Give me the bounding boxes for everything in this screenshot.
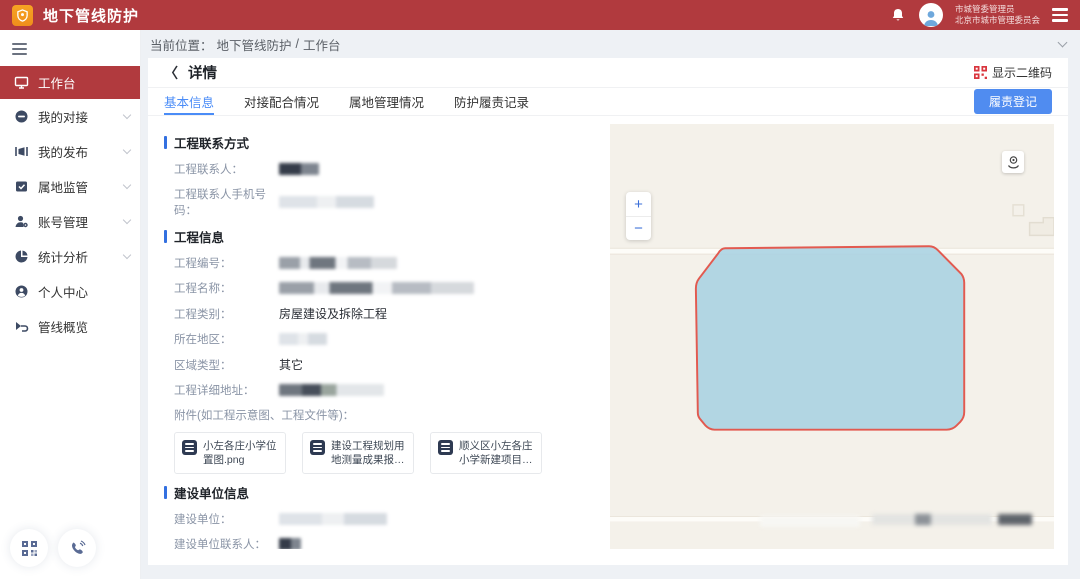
redacted-value: [279, 257, 397, 269]
section-bar: [164, 136, 167, 149]
chevron-down-icon: [123, 181, 131, 189]
supervise-check-icon: [14, 179, 29, 194]
field-region-type: 区域类型： 其它: [174, 356, 596, 373]
attachment-name: 小左各庄小学位置图.png: [203, 439, 278, 467]
map-building-outline: [1013, 205, 1024, 216]
chevron-down-icon: [123, 251, 131, 259]
map-watermark: [998, 514, 1032, 525]
attachment-item[interactable]: 建设工程规划用地测量成果报告-...: [302, 432, 414, 474]
phone-contact-button[interactable]: [58, 529, 96, 567]
account-gear-icon: [14, 214, 29, 229]
breadcrumb-root[interactable]: 地下管线防护: [217, 35, 292, 54]
app-title: 地下管线防护: [43, 5, 139, 26]
sidebar-item-workbench[interactable]: 工作台: [0, 66, 140, 99]
tab-bar: 基本信息 对接配合情况 属地管理情况 防护履责记录 履责登记: [148, 88, 1068, 116]
field-attachments-label: 附件(如工程示意图、工程文件等)：: [174, 407, 596, 423]
document-icon: [310, 440, 325, 455]
sidebar-item-label: 我的对接: [38, 107, 88, 126]
field-project-contact-name: 工程联系人：: [174, 161, 596, 177]
sidebar-item-label: 我的发布: [38, 142, 88, 161]
show-qr-code-link[interactable]: 显示二维码: [974, 64, 1052, 81]
sidebar-item-my-publish[interactable]: 我的发布: [0, 134, 140, 169]
breadcrumb-prefix: 当前位置：: [150, 35, 213, 54]
app-logo-shield-icon: [12, 5, 33, 26]
map-watermark: [760, 516, 860, 527]
field-project-category: 工程类别： 房屋建设及拆除工程: [174, 305, 596, 322]
chevron-down-icon: [123, 146, 131, 154]
map-zoom-control: + −: [626, 192, 651, 240]
sidebar-item-account-management[interactable]: 账号管理: [0, 204, 140, 239]
basic-info-form: 工程联系方式 工程联系人： 工程联系人手机号码： 工程信息: [164, 124, 596, 549]
chevron-down-icon: [123, 111, 131, 119]
sidebar: 工作台 我的对接 我的发布 属地监管: [0, 30, 140, 579]
document-icon: [438, 440, 453, 455]
field-construction-unit-contact: 建设单位联系人：: [174, 536, 596, 549]
app-header: 地下管线防护 市城管委管理员 北京市城市管理委员会: [0, 0, 1080, 30]
map-building-outline: [1030, 218, 1054, 236]
person-circle-icon: [14, 284, 29, 299]
back-chevron-icon[interactable]: 〈: [164, 66, 178, 80]
streetview-locate-icon[interactable]: [1002, 151, 1024, 173]
header-menu-icon[interactable]: [1052, 8, 1068, 22]
detail-card: 〈 详情 显示二维码 基本信息 对接配合情况 属地管理情况 防护履责记录 履责登…: [148, 58, 1068, 565]
redacted-value: [279, 196, 374, 208]
sidebar-item-statistics[interactable]: 统计分析: [0, 239, 140, 274]
section-construction-unit: 建设单位信息: [164, 483, 596, 502]
sidebar-item-territorial-supervision[interactable]: 属地监管: [0, 169, 140, 204]
attachment-name: 顺义区小左各庄小学新建项目-建设...: [459, 439, 534, 467]
tab-docking-cooperation[interactable]: 对接配合情况: [244, 88, 319, 115]
sidebar-item-personal-center[interactable]: 个人中心: [0, 274, 140, 309]
field-project-region: 所在地区：: [174, 331, 596, 347]
breadcrumb: 当前位置： 地下管线防护 / 工作台: [140, 30, 1080, 58]
sidebar-item-label: 个人中心: [38, 282, 88, 301]
section-project-contact: 工程联系方式: [164, 133, 596, 152]
section-bar: [164, 486, 167, 499]
attachment-item[interactable]: 顺义区小左各庄小学新建项目-建设...: [430, 432, 542, 474]
tab-protection-records[interactable]: 防护履责记录: [454, 88, 529, 115]
chevron-down-icon: [123, 216, 131, 224]
handshake-circle-icon: [14, 109, 29, 124]
publish-icon: [14, 144, 29, 159]
zoom-out-button[interactable]: −: [626, 216, 651, 240]
redacted-value: [279, 282, 474, 294]
redacted-value: [279, 538, 301, 549]
tab-territorial-management[interactable]: 属地管理情况: [349, 88, 424, 115]
field-project-address: 工程详细地址：: [174, 382, 596, 398]
field-construction-unit: 建设单位：: [174, 511, 596, 527]
show-qr-code-label: 显示二维码: [992, 64, 1052, 81]
parcel-polygon: [696, 246, 964, 429]
field-project-contact-phone: 工程联系人手机号码：: [174, 186, 596, 218]
sidebar-item-label: 统计分析: [38, 247, 88, 266]
sidebar-item-my-docking[interactable]: 我的对接: [0, 99, 140, 134]
sidebar-item-pipeline-overview[interactable]: 管线概览: [0, 309, 140, 344]
user-avatar[interactable]: [919, 3, 943, 27]
sidebar-nav: 工作台 我的对接 我的发布 属地监管: [0, 66, 140, 344]
notification-bell-icon[interactable]: [889, 6, 907, 24]
sidebar-collapse-icon[interactable]: [0, 30, 140, 64]
map-watermark: [915, 514, 931, 525]
attachment-name: 建设工程规划用地测量成果报告-...: [331, 439, 406, 467]
zoom-in-button[interactable]: +: [626, 192, 651, 216]
map-panel[interactable]: + −: [610, 124, 1054, 549]
document-icon: [182, 440, 197, 455]
section-project-info: 工程信息: [164, 227, 596, 246]
page-title: 详情: [188, 62, 217, 83]
breadcrumb-current: 工作台: [303, 35, 341, 54]
section-bar: [164, 230, 167, 243]
map-canvas: [610, 124, 1054, 549]
redacted-value: [279, 384, 384, 396]
redacted-value: [279, 333, 327, 345]
breadcrumb-collapse-chevron-icon[interactable]: [1058, 37, 1068, 47]
sidebar-item-label: 管线概览: [38, 317, 88, 336]
qr-red-icon: [974, 66, 987, 79]
sidebar-item-label: 工作台: [38, 73, 76, 92]
pie-chart-icon: [14, 249, 29, 264]
qr-code-button[interactable]: [10, 529, 48, 567]
user-info[interactable]: 市城管委管理员 北京市城市管理委员会: [955, 4, 1040, 25]
tab-basic-info[interactable]: 基本信息: [164, 88, 214, 115]
sidebar-item-label: 账号管理: [38, 212, 88, 231]
overview-arrow-icon: [14, 319, 29, 334]
workbench-monitor-icon: [14, 75, 29, 90]
user-org: 北京市城市管理委员会: [955, 15, 1040, 26]
field-project-number: 工程编号：: [174, 255, 596, 271]
breadcrumb-separator: /: [296, 37, 299, 51]
redacted-value: [279, 513, 387, 525]
redacted-value: [279, 163, 319, 175]
sidebar-item-label: 属地监管: [38, 177, 88, 196]
attachment-item[interactable]: 小左各庄小学位置图.png: [174, 432, 286, 474]
duty-register-button[interactable]: 履责登记: [974, 89, 1052, 114]
attachments-list: 小左各庄小学位置图.png 建设工程规划用地测量成果报告-... 顺义区小左各庄…: [174, 432, 596, 474]
field-project-name: 工程名称：: [174, 280, 596, 296]
user-name: 市城管委管理员: [955, 4, 1040, 15]
map-watermark: [872, 514, 992, 525]
